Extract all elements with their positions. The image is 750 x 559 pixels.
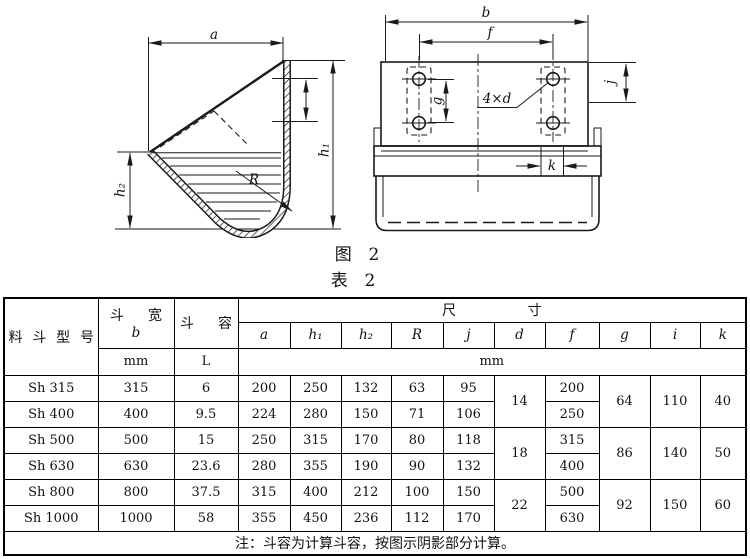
- cell-R: 90: [391, 453, 443, 479]
- cell-b: 315: [98, 375, 174, 401]
- cell-f: 315: [545, 427, 599, 453]
- cell-b: 800: [98, 479, 174, 505]
- cell-f: 630: [545, 505, 599, 531]
- table-note: 注：斗容为计算斗容，按图示阴影部分计算。: [4, 531, 746, 555]
- cell-i: 140: [650, 427, 700, 479]
- table-caption: 表 2: [0, 266, 708, 291]
- cell-R: 100: [391, 479, 443, 505]
- cell-vol: 9.5: [174, 401, 238, 427]
- header-dimensions: 尺 寸: [238, 298, 746, 322]
- table-row: Sh 315 315 6 200 250 132 63 95 14 200 64…: [4, 375, 746, 401]
- bucket-front-view: b f: [374, 5, 636, 231]
- cell-g: 92: [599, 479, 650, 531]
- cell-d: 18: [494, 427, 545, 479]
- cell-model: Sh 500: [4, 427, 98, 453]
- spec-table: 料斗型号 斗 宽 b 斗 容 尺 寸 a h₁ h₂ R j d f g i k: [3, 297, 747, 556]
- header-dim-d: d: [494, 322, 545, 348]
- cell-R: 63: [391, 375, 443, 401]
- cell-vol: 6: [174, 375, 238, 401]
- cell-h1: 450: [290, 505, 341, 531]
- label-j: j: [603, 80, 619, 87]
- label-h1: h₁: [317, 143, 333, 157]
- figure-caption: 图 2: [0, 240, 716, 265]
- cell-h1: 355: [290, 453, 341, 479]
- cell-j: 132: [443, 453, 494, 479]
- cell-f: 200: [545, 375, 599, 401]
- header-bucket-volume: 斗 容: [174, 298, 238, 348]
- label-R: R: [248, 172, 259, 188]
- cell-h2: 150: [341, 401, 391, 427]
- cell-i: 150: [650, 479, 700, 531]
- header-dim-j: j: [443, 322, 494, 348]
- cell-model: Sh 800: [4, 479, 98, 505]
- cell-k: 60: [700, 479, 746, 531]
- header-bucket-width: 斗 宽 b: [98, 298, 174, 348]
- cell-vol: 23.6: [174, 453, 238, 479]
- cell-g: 64: [599, 375, 650, 427]
- cell-k: 50: [700, 427, 746, 479]
- cell-j: 118: [443, 427, 494, 453]
- cell-j: 170: [443, 505, 494, 531]
- cell-h2: 236: [341, 505, 391, 531]
- cell-k: 40: [700, 375, 746, 427]
- cell-j: 150: [443, 479, 494, 505]
- cell-b: 400: [98, 401, 174, 427]
- header-dim-R: R: [391, 322, 443, 348]
- cell-j: 106: [443, 401, 494, 427]
- cell-h1: 250: [290, 375, 341, 401]
- cell-h1: 400: [290, 479, 341, 505]
- label-g: g: [430, 96, 446, 105]
- cell-a: 250: [238, 427, 290, 453]
- cell-a: 355: [238, 505, 290, 531]
- cell-R: 112: [391, 505, 443, 531]
- cell-model: Sh 400: [4, 401, 98, 427]
- cell-d: 14: [494, 375, 545, 427]
- header-model: 料斗型号: [4, 298, 98, 375]
- cell-i: 110: [650, 375, 700, 427]
- cell-b: 500: [98, 427, 174, 453]
- cell-vol: 58: [174, 505, 238, 531]
- cell-a: 200: [238, 375, 290, 401]
- cell-b: 1000: [98, 505, 174, 531]
- cell-h2: 212: [341, 479, 391, 505]
- bucket-side-view: a: [113, 27, 346, 235]
- label-4xd: 4×d: [482, 91, 512, 107]
- cell-d: 22: [494, 479, 545, 531]
- header-dim-g: g: [599, 322, 650, 348]
- cell-R: 80: [391, 427, 443, 453]
- header-dim-a: a: [238, 322, 290, 348]
- unit-width: mm: [98, 348, 174, 375]
- label-b: b: [482, 5, 491, 21]
- table-row: Sh 800 800 37.5 315 400 212 100 150 22 5…: [4, 479, 746, 505]
- unit-volume: L: [174, 348, 238, 375]
- cell-j: 95: [443, 375, 494, 401]
- cell-f: 250: [545, 401, 599, 427]
- unit-dimensions: mm: [238, 348, 746, 375]
- label-f: f: [487, 25, 495, 41]
- cell-h1: 315: [290, 427, 341, 453]
- table-row: Sh 500 500 15 250 315 170 80 118 18 315 …: [4, 427, 746, 453]
- cell-vol: 37.5: [174, 479, 238, 505]
- cell-a: 280: [238, 453, 290, 479]
- shaded-volume: [152, 153, 281, 219]
- cell-h2: 170: [341, 427, 391, 453]
- cell-b: 630: [98, 453, 174, 479]
- cell-vol: 15: [174, 427, 238, 453]
- header-dim-i: i: [650, 322, 700, 348]
- header-dim-k: k: [700, 322, 746, 348]
- cell-h2: 190: [341, 453, 391, 479]
- header-dim-h2: h₂: [341, 322, 391, 348]
- cell-a: 224: [238, 401, 290, 427]
- cell-model: Sh 630: [4, 453, 98, 479]
- header-dim-h1: h₁: [290, 322, 341, 348]
- document-page: a: [0, 0, 750, 559]
- label-a: a: [210, 27, 218, 43]
- cell-R: 71: [391, 401, 443, 427]
- figure-2-drawing: a: [0, 0, 750, 238]
- cell-h1: 280: [290, 401, 341, 427]
- cell-g: 86: [599, 427, 650, 479]
- label-h2: h₂: [113, 183, 129, 197]
- header-dim-f: f: [545, 322, 599, 348]
- cell-f: 500: [545, 479, 599, 505]
- cell-h2: 132: [341, 375, 391, 401]
- cell-model: Sh 315: [4, 375, 98, 401]
- cell-f: 400: [545, 453, 599, 479]
- label-k: k: [548, 158, 556, 174]
- cell-a: 315: [238, 479, 290, 505]
- cell-model: Sh 1000: [4, 505, 98, 531]
